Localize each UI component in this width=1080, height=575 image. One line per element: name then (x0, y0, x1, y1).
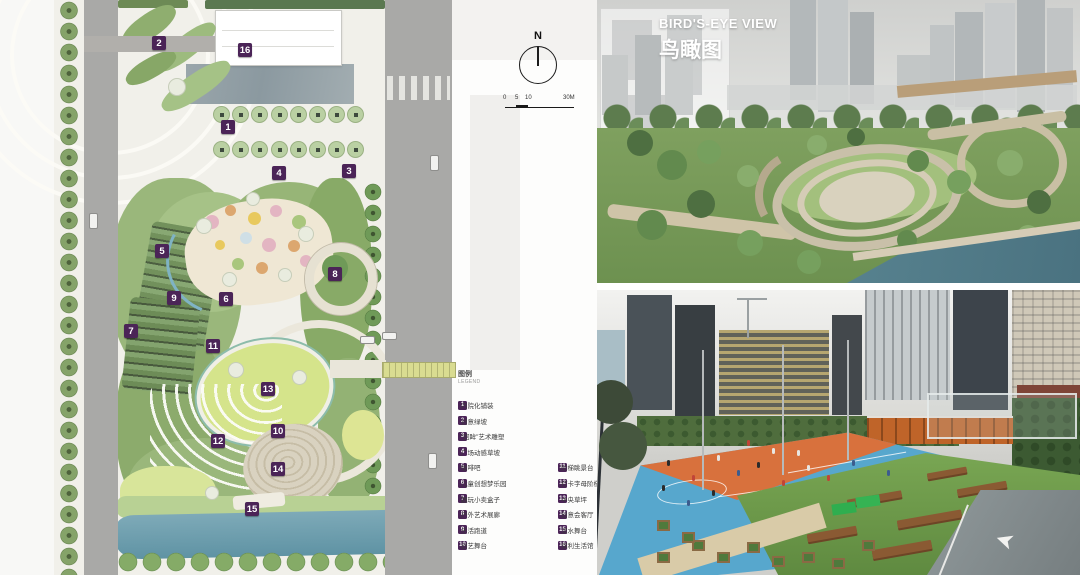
birdseye-title-zh: 鸟瞰图 (659, 34, 919, 64)
scale-tick-label: 10 (525, 95, 532, 101)
park-tree (947, 170, 971, 194)
plan-marker-1: 1 (221, 120, 235, 134)
legend-item-label: 儿童创想梦乐园 (461, 478, 507, 488)
legend-item-label: 创艺舞台 (461, 540, 487, 550)
park-tree (737, 230, 763, 256)
scale-tick-label: 5 (515, 95, 518, 101)
park-tree (807, 135, 827, 155)
legend-item-label: 内院化铺装 (461, 400, 494, 410)
park-tree (997, 150, 1023, 176)
legend-item-label: 保利生活馆 (561, 540, 594, 550)
plan-marker-14: 14 (271, 462, 285, 476)
park-tree (627, 130, 653, 156)
plan-marker-13: 13 (261, 382, 275, 396)
scale-bar-segment (516, 105, 528, 108)
pedestrian-bridge (382, 362, 456, 378)
compass-needle (537, 47, 539, 66)
person-figure (757, 462, 760, 468)
plan-marker-2: 2 (152, 36, 166, 50)
park-tree (907, 150, 929, 172)
legend-item-label: 乐活跑道 (461, 525, 487, 535)
legend: 图例 LEGEND 1内院化铺装2创意绿坡3“回眸”艺术雕塑4广场动感草坡5咖啡… (454, 371, 596, 566)
ghost-artwork (470, 95, 520, 370)
legend-item-label: 创意会客厅 (561, 509, 594, 519)
plan-marker-4: 4 (272, 166, 286, 180)
scale-bar (505, 104, 574, 108)
plan-marker-9: 9 (167, 291, 181, 305)
north-arrow: N (452, 0, 597, 130)
birdseye-title: BIRD'S-EYE VIEW 鸟瞰图 (659, 16, 919, 76)
person-figure (667, 460, 670, 466)
legend-item-label: 创意绿坡 (461, 416, 487, 426)
person-figure (772, 448, 775, 454)
person-figure (782, 480, 785, 486)
park-tree (687, 190, 715, 218)
legend-item-label: 户外艺术展廊 (461, 509, 500, 519)
person-figure (712, 490, 715, 496)
presentation-board: 12345678910111213141516 N 0 5 10 30M 图例 … (0, 0, 1080, 575)
park-tree (737, 165, 759, 187)
person-figure (797, 450, 800, 456)
birdseye-rendering: BIRD'S-EYE VIEW 鸟瞰图 (597, 0, 1080, 283)
legend-item-label: 广场动感草坡 (461, 447, 500, 457)
park-tree (697, 140, 721, 164)
legend-item-label: 趣玩小卖盒子 (461, 494, 500, 504)
person-figure (737, 470, 740, 476)
plan-marker-6: 6 (219, 292, 233, 306)
legend-item-label: 阶梯眺景台 (561, 462, 594, 472)
legend-item-label: 咖啡吧 (461, 462, 481, 472)
site-plan: 12345678910111213141516 (0, 0, 452, 575)
plan-marker-12: 12 (211, 434, 225, 448)
park-tree (1027, 190, 1051, 214)
person-figure (687, 500, 690, 506)
plan-marker-15: 15 (245, 502, 259, 516)
legend-item-label: 中央草坪 (561, 494, 587, 504)
plan-marker-11: 11 (206, 339, 220, 353)
person-figure (747, 440, 750, 446)
urban-court-photo: ➤ (597, 290, 1080, 575)
plan-marker-layer: 12345678910111213141516 (0, 0, 452, 575)
person-figure (692, 475, 695, 481)
plan-marker-7: 7 (124, 324, 138, 338)
plan-marker-8: 8 (328, 267, 342, 281)
birdseye-title-en: BIRD'S-EYE VIEW (659, 16, 919, 31)
person-figure (662, 485, 665, 491)
legend-item-label: 打卡字母阶梯 (561, 478, 600, 488)
park-tree (637, 210, 667, 240)
legend-item-label: “回眸”艺术雕塑 (461, 431, 504, 441)
park-tree (847, 128, 865, 146)
park-tree (657, 150, 687, 180)
plan-marker-16: 16 (238, 43, 252, 57)
north-label: N (526, 30, 550, 42)
legend-item-list: 1内院化铺装2创意绿坡3“回眸”艺术雕塑4广场动感草坡5咖啡吧6儿童创想梦乐园7… (454, 371, 596, 566)
scale-tick-label: 30M (563, 95, 575, 101)
plan-marker-10: 10 (271, 424, 285, 438)
person-figure (852, 460, 855, 466)
person-figure (717, 455, 720, 461)
plan-marker-5: 5 (155, 244, 169, 258)
scale-tick-label: 0 (503, 95, 506, 101)
annotation-strip: N 0 5 10 30M 图例 LEGEND 1内院化铺装2创意绿坡3“回眸”艺… (452, 0, 597, 575)
person-figure (887, 470, 890, 476)
park-tree (797, 250, 821, 274)
legend-item-label: 滨水舞台 (561, 525, 587, 535)
person-figure (807, 465, 810, 471)
person-figure (827, 475, 830, 481)
plan-marker-3: 3 (342, 164, 356, 178)
